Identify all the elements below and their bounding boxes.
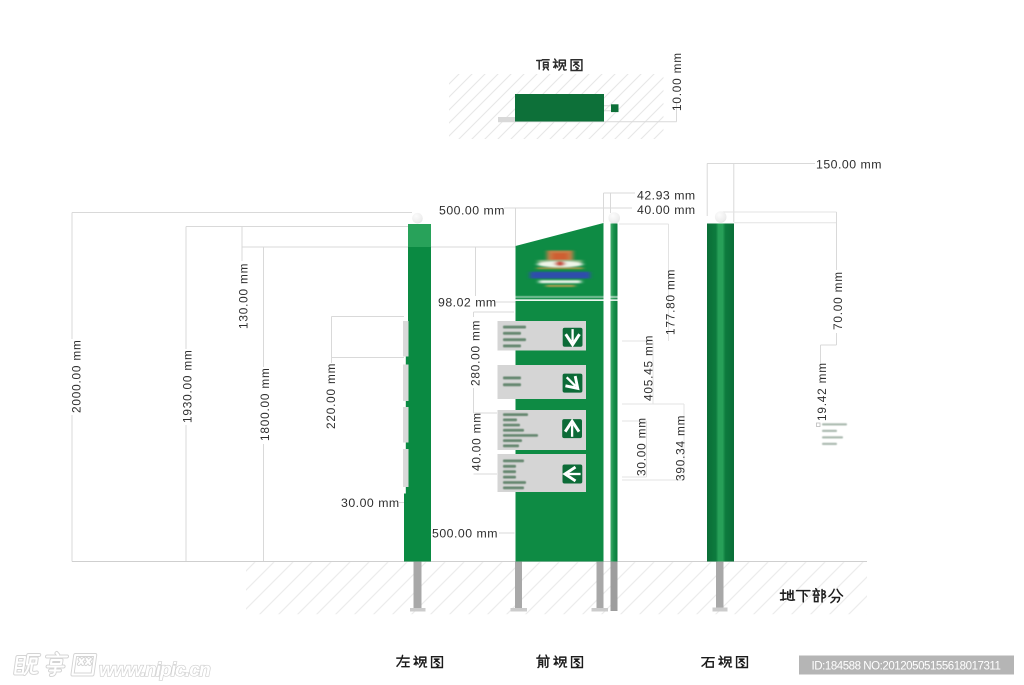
svg-text:70.00 mm: 70.00 mm	[831, 271, 845, 330]
svg-text:30.00 mm: 30.00 mm	[635, 417, 649, 476]
svg-text:390.34 mm: 390.34 mm	[674, 415, 688, 481]
svg-text:220.00 mm: 220.00 mm	[324, 363, 338, 429]
svg-text:30.00 mm: 30.00 mm	[341, 496, 400, 510]
svg-text:150.00 mm: 150.00 mm	[816, 158, 882, 172]
svg-text:1930.00 mm: 1930.00 mm	[181, 349, 195, 423]
svg-text:98.02 mm: 98.02 mm	[438, 296, 497, 310]
svg-text:ID:184588 NO:20120505155618017: ID:184588 NO:20120505155618017311	[812, 661, 1001, 673]
svg-text:280.00 mm: 280.00 mm	[469, 320, 483, 386]
svg-text:500.00 mm: 500.00 mm	[439, 204, 505, 218]
svg-text:130.00 mm: 130.00 mm	[237, 263, 251, 329]
svg-text:42.93 mm: 42.93 mm	[637, 189, 696, 203]
svg-text:177.80 mm: 177.80 mm	[664, 269, 678, 335]
svg-text:19.42 mm: 19.42 mm	[815, 362, 829, 421]
svg-text:1800.00 mm: 1800.00 mm	[258, 367, 272, 441]
svg-text:500.00 mm: 500.00 mm	[432, 527, 498, 541]
svg-text:2000.00 mm: 2000.00 mm	[70, 339, 84, 413]
svg-text:40.00 mm: 40.00 mm	[637, 203, 696, 217]
svg-text:10.00 mm: 10.00 mm	[670, 52, 684, 111]
svg-text:www.nipic.cn: www.nipic.cn	[99, 659, 211, 681]
svg-text:40.00 mm: 40.00 mm	[470, 412, 484, 471]
svg-text:405.45 mm: 405.45 mm	[642, 335, 656, 401]
